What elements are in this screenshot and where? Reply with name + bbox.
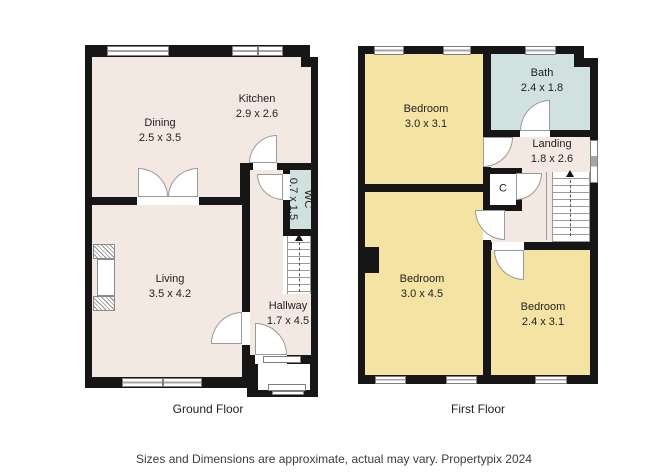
bath-window xyxy=(525,46,556,55)
room-name: Bath xyxy=(521,66,563,81)
bedroom-front-label: Bedroom 3.0 x 3.1 xyxy=(404,102,449,132)
room-name: Bedroom xyxy=(400,272,445,287)
stairs-first-direction-line xyxy=(570,180,571,236)
room-dims: 1.8 x 2.6 xyxy=(531,152,573,167)
bath-label: Bath 2.4 x 1.8 xyxy=(521,66,563,96)
bedroom-front-window-2 xyxy=(443,46,471,55)
bedroom-back-label: Bedroom 2.4 x 3.1 xyxy=(521,300,566,330)
room-dims: 2.4 x 1.8 xyxy=(521,81,563,96)
bedroom-main-label: Bedroom 3.0 x 4.5 xyxy=(400,272,445,302)
chimney-breast xyxy=(365,247,379,273)
bedroom-front-south-wall xyxy=(358,184,488,192)
stairs-first-icon xyxy=(552,172,590,242)
first-floor-title: First Floor xyxy=(451,402,505,416)
room-dims: 3.0 x 4.5 xyxy=(400,287,445,302)
bath-corner-notch xyxy=(584,46,598,58)
landing-window xyxy=(590,140,598,183)
landing-label: Landing 1.8 x 2.6 xyxy=(531,137,573,167)
bath-door-gap xyxy=(520,130,550,137)
floorplan-canvas: Dining 2.5 x 3.5 Kitchen 2.9 x 2.6 Livin… xyxy=(0,0,668,472)
room-dims: 3.0 x 3.1 xyxy=(404,117,449,132)
room-name: Landing xyxy=(531,137,573,152)
room-dims: 2.4 x 3.1 xyxy=(521,315,566,330)
bedroom-front-window-1 xyxy=(374,46,404,55)
room-name: C xyxy=(499,182,507,197)
disclaimer-text: Sizes and Dimensions are approximate, ac… xyxy=(0,452,668,466)
cupboard-label: C xyxy=(499,182,507,197)
room-name: Bedroom xyxy=(521,300,566,315)
bedroom-back-door-gap xyxy=(492,242,524,250)
bedroom-main-window-2 xyxy=(446,376,477,384)
stairs-first-up-arrow-icon xyxy=(566,170,574,177)
bedroom-back-window xyxy=(535,376,567,384)
bedroom-main-window-1 xyxy=(375,376,406,384)
first-floor-plan: Bedroom 3.0 x 3.1 Bath 2.4 x 1.8 Landing… xyxy=(0,0,668,472)
room-name: Bedroom xyxy=(404,102,449,117)
